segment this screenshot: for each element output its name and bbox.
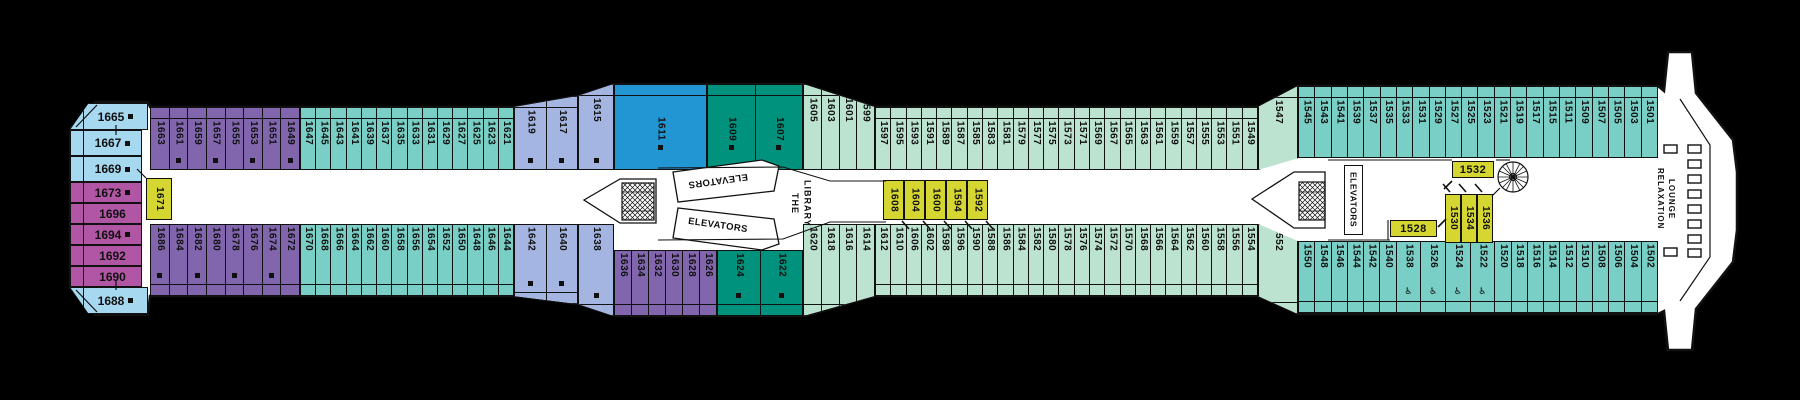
- balcony-strip: [1315, 301, 1330, 312]
- cabin-number: 1649: [285, 121, 295, 145]
- cabin-number: 1550: [1302, 244, 1312, 268]
- cabin-1603: 1603: [821, 85, 839, 169]
- balcony-strip: [937, 108, 951, 119]
- wheelchair-accessible-icon: ♿: [1454, 288, 1462, 297]
- balcony-strip: [331, 284, 345, 295]
- cabin-section-mid-bottom-purple: 163616341632163016281626: [614, 250, 717, 316]
- balcony-strip: [1462, 87, 1477, 98]
- cabin-number: 1673: [95, 186, 122, 200]
- cabin-number: 1595: [893, 121, 903, 145]
- cabin-number: 1502: [1644, 244, 1654, 268]
- sofa-bed-square-marker: [528, 281, 533, 286]
- balcony-strip: [1625, 301, 1640, 312]
- cabin-number: 1568: [1138, 227, 1148, 251]
- inside-cabin-1532: 1532: [1452, 161, 1494, 178]
- cabin-1584: 1584: [1013, 225, 1028, 295]
- balcony-strip: [1413, 87, 1428, 98]
- balcony-strip: [876, 108, 890, 119]
- balcony-strip: [453, 284, 467, 295]
- cabin-1573: 1573: [1058, 108, 1073, 169]
- cabin-1668: 1668: [315, 225, 330, 295]
- sofa-bed-square-marker: [125, 141, 130, 146]
- balcony-strip: [1243, 284, 1257, 295]
- cabin-1550: 1550: [1299, 242, 1314, 312]
- cabin-number: 1569: [1092, 121, 1102, 145]
- cabin-1672: 1672: [280, 225, 299, 295]
- cabin-number: 1636: [618, 253, 628, 277]
- cabin-1560: 1560: [1196, 225, 1211, 295]
- cabin-number: 1584: [1016, 227, 1026, 251]
- cabin-1502: 1502: [1641, 242, 1657, 312]
- cabin-1545: 1545: [1299, 87, 1314, 157]
- cabin-number: 1643: [334, 121, 344, 145]
- cabin-1593: 1593: [906, 108, 921, 169]
- balcony-strip: [1593, 301, 1608, 312]
- balcony-strip: [968, 284, 982, 295]
- cabin-number: 1639: [364, 121, 374, 145]
- balcony-strip: [1478, 87, 1493, 98]
- cabin-1619: 1619: [515, 97, 546, 169]
- balcony-strip: [1105, 284, 1119, 295]
- cabin-number: 1601: [843, 98, 853, 122]
- cabin-number: 1647: [303, 121, 313, 145]
- balcony-strip: [1364, 87, 1379, 98]
- cabin-1662: 1662: [361, 225, 376, 295]
- sofa-bed-square-marker: [288, 158, 293, 163]
- library-label: THE LIBRARY: [786, 181, 816, 225]
- balcony-strip: [316, 284, 330, 295]
- balcony-strip: [408, 108, 422, 119]
- cabin-1657: 1657: [206, 108, 225, 169]
- cabin-number: 1611: [656, 117, 666, 141]
- cabin-1663: 1663: [151, 108, 169, 169]
- cabin-section-aft-bottom-teal: 1670166816661664166216601658165616541652…: [300, 224, 514, 296]
- balcony-strip: [1166, 108, 1180, 119]
- cabin-1541: 1541: [1331, 87, 1347, 157]
- cabin-number: 1612: [878, 227, 888, 251]
- balcony-strip: [1625, 87, 1640, 98]
- cabin-number: 1640: [557, 227, 567, 251]
- balcony-strip: [1642, 87, 1657, 98]
- cabin-number: 1626: [703, 253, 713, 277]
- balcony-strip: [71, 288, 84, 313]
- balcony-strip: [1471, 301, 1495, 312]
- balcony-strip: [1182, 108, 1196, 119]
- cabin-1583: 1583: [982, 108, 997, 169]
- cabin-1533: 1533: [1396, 87, 1412, 157]
- sofa-bed-square-marker: [125, 167, 130, 172]
- cabin-1624: 1624: [718, 251, 760, 315]
- cabin-number: 1622: [776, 253, 786, 277]
- balcony-strip: [151, 284, 169, 295]
- sofa-bed-square-marker: [594, 158, 599, 163]
- balcony-strip: [1495, 87, 1510, 98]
- cabin-number: 1553: [1214, 121, 1224, 145]
- cabin-1564: 1564: [1165, 225, 1180, 295]
- cabin-number: 1644: [501, 227, 511, 251]
- cabin-1630: 1630: [665, 251, 682, 315]
- cabin-section-top-angled-1547: 1547: [1258, 86, 1298, 170]
- sofa-bed-square-marker: [658, 145, 663, 150]
- balcony-strip: [1059, 284, 1073, 295]
- cabin-1629: 1629: [437, 108, 452, 169]
- cabin-number: 1625: [471, 121, 481, 145]
- cabin-number: 1572: [1107, 227, 1117, 251]
- cabin-number: 1651: [267, 121, 277, 145]
- cabin-section-mid-top-palegreen: 1597159515931591158915871585158315811579…: [875, 107, 1258, 170]
- cabin-1596: 1596: [951, 225, 966, 295]
- inside-cabin-1536: 1536: [1477, 194, 1493, 243]
- cabin-number: 1546: [1334, 244, 1344, 268]
- cabin-number: 1564: [1168, 227, 1178, 251]
- balcony-strip: [708, 85, 755, 96]
- cabin-number: 1505: [1612, 100, 1622, 124]
- cabin-number: 1527: [1448, 100, 1458, 124]
- inside-cabin-1600: 1600: [925, 180, 946, 220]
- cabin-number: 1536: [1480, 206, 1490, 230]
- sofa-bed-square-marker: [776, 145, 781, 150]
- cabin-number: 1506: [1612, 244, 1622, 268]
- cabin-1579: 1579: [1013, 108, 1028, 169]
- balcony-strip: [1364, 301, 1379, 312]
- cabin-1589: 1589: [936, 108, 951, 169]
- balcony-strip: [1182, 284, 1196, 295]
- balcony-strip: [71, 204, 84, 223]
- cabin-1511: 1511: [1559, 87, 1575, 157]
- cabin-number: 1582: [1031, 227, 1041, 251]
- deck-plan: 1663166116591657165516531651164916471645…: [0, 0, 1800, 400]
- cabin-number: 1518: [1514, 244, 1524, 268]
- balcony-strip: [362, 108, 376, 119]
- balcony-strip: [438, 284, 452, 295]
- cabin-section-fwd-top-teal: 1545154315411539153715351533153115291527…: [1298, 86, 1658, 158]
- cabin-1649: 1649: [280, 108, 299, 169]
- balcony-strip: [207, 108, 225, 119]
- cabin-1637: 1637: [376, 108, 391, 169]
- cabin-1635: 1635: [391, 108, 406, 169]
- balcony-strip: [615, 304, 631, 315]
- balcony-strip: [468, 108, 482, 119]
- cabin-number: 1602: [924, 227, 934, 251]
- cabin-number: 1552: [1273, 227, 1283, 251]
- cabin-number: 1573: [1062, 121, 1072, 145]
- cabin-1559: 1559: [1165, 108, 1180, 169]
- cabin-1563: 1563: [1135, 108, 1150, 169]
- cabin-number: 1624: [734, 253, 744, 277]
- cabin-number: 1686: [155, 227, 165, 251]
- wheelchair-accessible-icon: ♿: [1429, 288, 1437, 297]
- cabin-number: 1597: [878, 121, 888, 145]
- cabin-1520: 1520: [1494, 242, 1510, 312]
- cabin-number: 1630: [669, 253, 679, 277]
- balcony-strip: [263, 108, 281, 119]
- cabin-1627: 1627: [452, 108, 467, 169]
- cabin-1542: 1542: [1363, 242, 1379, 312]
- sofa-bed-square-marker: [736, 293, 741, 298]
- cabin-1647: 1647: [301, 108, 315, 169]
- cabin-number: 1549: [1245, 121, 1255, 145]
- cabin-number: 1554: [1245, 227, 1255, 251]
- balcony-strip: [362, 284, 376, 295]
- cabin-number: 1670: [303, 227, 313, 251]
- balcony-strip: [377, 284, 391, 295]
- cabin-number: 1656: [410, 227, 420, 251]
- cabin-number: 1666: [334, 227, 344, 251]
- cabin-1609: 1609: [708, 85, 755, 169]
- balcony-strip: [1576, 87, 1591, 98]
- cabin-number: 1692: [99, 249, 126, 263]
- cabin-1622: 1622: [760, 251, 803, 315]
- cabin-1524: 1524♿: [1445, 242, 1470, 312]
- balcony-strip: [1381, 87, 1396, 98]
- cabin-1582: 1582: [1028, 225, 1043, 295]
- cabin-number: 1508: [1596, 244, 1606, 268]
- cabin-1510: 1510: [1576, 242, 1592, 312]
- cabin-number: 1609: [726, 117, 736, 141]
- cabin-section-fwd-bottom-teal: 1550154815461544154215401538♿1526♿1524♿1…: [1298, 241, 1658, 313]
- cabin-number: 1616: [843, 227, 853, 251]
- balcony-strip: [71, 246, 84, 265]
- cabin-number: 1530: [1448, 206, 1458, 230]
- cabin-number: 1648: [471, 227, 481, 251]
- sofa-bed-square-marker: [213, 158, 218, 163]
- sofa-bed-square-marker: [729, 145, 734, 150]
- cabin-1605: 1605: [804, 85, 821, 169]
- cabin-number: 1545: [1302, 100, 1312, 124]
- cabin-number: 1510: [1579, 244, 1589, 268]
- balcony-strip: [207, 284, 225, 295]
- cabin-number: 1534: [1464, 206, 1474, 230]
- cabin-1646: 1646: [483, 225, 498, 295]
- balcony-strip: [1560, 87, 1575, 98]
- cabin-number: 1583: [985, 121, 995, 145]
- wheelchair-accessible-icon: ♿: [1404, 288, 1412, 297]
- cabin-1519: 1519: [1510, 87, 1526, 157]
- balcony-strip: [761, 304, 803, 315]
- balcony-strip: [1299, 87, 1314, 98]
- cabin-number: 1501: [1644, 100, 1654, 124]
- cabin-1515: 1515: [1543, 87, 1559, 157]
- cabin-number: 1557: [1184, 121, 1194, 145]
- suite-1665: 1665: [70, 103, 148, 130]
- cabin-1527: 1527: [1445, 87, 1461, 157]
- balcony-strip: [347, 284, 361, 295]
- balcony-strip: [263, 284, 281, 295]
- cabin-number: 1541: [1334, 100, 1344, 124]
- cabin-layer: 1663166116591657165516531651164916471645…: [0, 0, 1800, 400]
- balcony-strip: [1560, 301, 1575, 312]
- cabin-number: 1566: [1153, 227, 1163, 251]
- cabin-1523: 1523: [1477, 87, 1493, 157]
- balcony-strip: [1544, 301, 1559, 312]
- cabin-1503: 1503: [1624, 87, 1640, 157]
- cabin-1625: 1625: [467, 108, 482, 169]
- cabin-number: 1515: [1546, 100, 1556, 124]
- cabin-section-aft-top-teal: 1647164516431641163916371635163316311629…: [300, 107, 514, 170]
- cabin-1574: 1574: [1089, 225, 1104, 295]
- balcony-strip: [968, 108, 982, 119]
- cabin-1620: 1620: [804, 225, 821, 315]
- cabin-number: 1678: [229, 227, 239, 251]
- cabin-1641: 1641: [346, 108, 361, 169]
- cabin-1569: 1569: [1089, 108, 1104, 169]
- cabin-section-aft-top-purple: 16631661165916571655165316511649: [150, 107, 300, 170]
- cabin-number: 1607: [774, 117, 784, 141]
- balcony-strip: [1136, 108, 1150, 119]
- cabin-1531: 1531: [1412, 87, 1428, 157]
- balcony-strip: [1029, 108, 1043, 119]
- cabin-number: 1507: [1595, 100, 1605, 124]
- cabin-1518: 1518: [1511, 242, 1527, 312]
- cabin-1684: 1684: [169, 225, 188, 295]
- sofa-bed-square-marker: [128, 114, 133, 119]
- cabin-number: 1684: [173, 227, 183, 251]
- balcony-strip: [804, 85, 821, 96]
- balcony-strip: [1315, 87, 1330, 98]
- cabin-number: 1664: [349, 227, 359, 251]
- cabin-number: 1593: [909, 121, 919, 145]
- cabin-number: 1668: [318, 227, 328, 251]
- cabin-number: 1520: [1498, 244, 1508, 268]
- cabin-number: 1571: [1077, 121, 1087, 145]
- cabin-number: 1511: [1563, 100, 1573, 124]
- cabin-1658: 1658: [391, 225, 406, 295]
- cabin-section-mid-bottom-darkteal: 16241622: [717, 250, 803, 316]
- balcony-strip: [1528, 301, 1543, 312]
- balcony-strip: [1243, 108, 1257, 119]
- cabin-number: 1694: [95, 228, 122, 242]
- cabin-number: 1525: [1465, 100, 1475, 124]
- cabin-1521: 1521: [1494, 87, 1510, 157]
- sofa-bed-square-marker: [195, 273, 200, 278]
- balcony-strip: [718, 304, 760, 315]
- sofa-bed-square-marker: [559, 281, 564, 286]
- balcony-strip: [857, 85, 874, 96]
- balcony-strip: [170, 284, 188, 295]
- balcony-strip: [615, 85, 706, 96]
- cabin-1566: 1566: [1150, 225, 1165, 295]
- cabin-number: 1560: [1199, 227, 1209, 251]
- balcony-strip: [1511, 87, 1526, 98]
- suite-1669: 1669: [70, 156, 142, 182]
- cabin-number: 1614: [861, 227, 871, 251]
- balcony-strip: [71, 104, 84, 129]
- balcony-strip: [71, 183, 84, 202]
- balcony-strip: [891, 108, 905, 119]
- balcony-strip: [1421, 301, 1445, 312]
- cabin-number: 1650: [455, 227, 465, 251]
- cabin-number: 1617: [557, 110, 567, 134]
- balcony-strip: [1044, 284, 1058, 295]
- cabin-number: 1576: [1077, 227, 1087, 251]
- balcony-strip: [1136, 284, 1150, 295]
- cabin-1642: 1642: [515, 225, 546, 303]
- cabin-number: 1598: [939, 227, 949, 251]
- cabin-number: 1535: [1383, 100, 1393, 124]
- balcony-strip: [1593, 87, 1608, 98]
- cabin-number: 1608: [889, 188, 899, 212]
- cabin-number: 1633: [410, 121, 420, 145]
- suite-1673: 1673: [70, 182, 142, 203]
- cabin-number: 1631: [425, 121, 435, 145]
- inside-cabin-1594: 1594: [946, 180, 967, 220]
- cabin-number: 1682: [192, 227, 202, 251]
- cabin-1504: 1504: [1624, 242, 1640, 312]
- cabin-number: 1547: [1273, 100, 1283, 124]
- cabin-1548: 1548: [1314, 242, 1330, 312]
- balcony-strip: [1014, 108, 1028, 119]
- balcony-strip: [666, 304, 682, 315]
- balcony-strip: [1151, 284, 1165, 295]
- cabin-number: 1585: [970, 121, 980, 145]
- balcony-strip: [922, 108, 936, 119]
- cabin-1633: 1633: [407, 108, 422, 169]
- balcony-strip: [316, 108, 330, 119]
- suite-1696: 1696: [70, 203, 142, 224]
- balcony-strip: [891, 284, 905, 295]
- balcony-strip: [1166, 284, 1180, 295]
- cabin-section-aft-bottom-purple: 16861684168216801678167616741672: [150, 224, 300, 296]
- balcony-strip: [484, 284, 498, 295]
- cabin-1546: 1546: [1331, 242, 1347, 312]
- balcony-strip: [71, 131, 84, 155]
- cabin-1553: 1553: [1211, 108, 1226, 169]
- cabin-number: 1660: [379, 227, 389, 251]
- cabin-number: 1628: [686, 253, 696, 277]
- balcony-strip: [1527, 87, 1542, 98]
- cabin-1576: 1576: [1074, 225, 1089, 295]
- cabin-number: 1587: [955, 121, 965, 145]
- sofa-bed-square-marker: [176, 158, 181, 163]
- cabin-number: 1655: [229, 121, 239, 145]
- sofa-bed-square-marker: [125, 190, 130, 195]
- cabin-number: 1567: [1107, 121, 1117, 145]
- balcony-strip: [840, 304, 857, 315]
- cabin-1602: 1602: [921, 225, 936, 295]
- cabin-1607: 1607: [755, 85, 803, 169]
- balcony-strip: [244, 108, 262, 119]
- cabin-1557: 1557: [1181, 108, 1196, 169]
- suite-1690: 1690: [70, 266, 142, 287]
- sofa-bed-square-marker: [250, 158, 255, 163]
- balcony-strip: [301, 108, 315, 119]
- cabin-1556: 1556: [1226, 225, 1241, 295]
- cabin-1543: 1543: [1314, 87, 1330, 157]
- cabin-number: 1574: [1092, 227, 1102, 251]
- balcony-strip: [1380, 301, 1395, 312]
- balcony-strip: [1495, 301, 1510, 312]
- cabin-number: 1588: [985, 227, 995, 251]
- balcony-strip: [226, 284, 244, 295]
- balcony-strip: [71, 267, 84, 286]
- cabin-number: 1531: [1416, 100, 1426, 124]
- balcony-strip: [632, 304, 648, 315]
- balcony-strip: [301, 284, 315, 295]
- cabin-number: 1558: [1214, 227, 1224, 251]
- balcony-strip: [983, 108, 997, 119]
- cabin-1636: 1636: [615, 251, 631, 315]
- cabin-1512: 1512: [1559, 242, 1575, 312]
- cabin-1623: 1623: [483, 108, 498, 169]
- balcony-strip: [1212, 108, 1226, 119]
- balcony-strip: [1259, 87, 1297, 98]
- balcony-strip: [952, 108, 966, 119]
- cabin-number: 1657: [211, 121, 221, 145]
- balcony-strip: [922, 284, 936, 295]
- cabin-1585: 1585: [967, 108, 982, 169]
- inside-cabin-1592: 1592: [967, 180, 988, 220]
- balcony-strip: [1059, 108, 1073, 119]
